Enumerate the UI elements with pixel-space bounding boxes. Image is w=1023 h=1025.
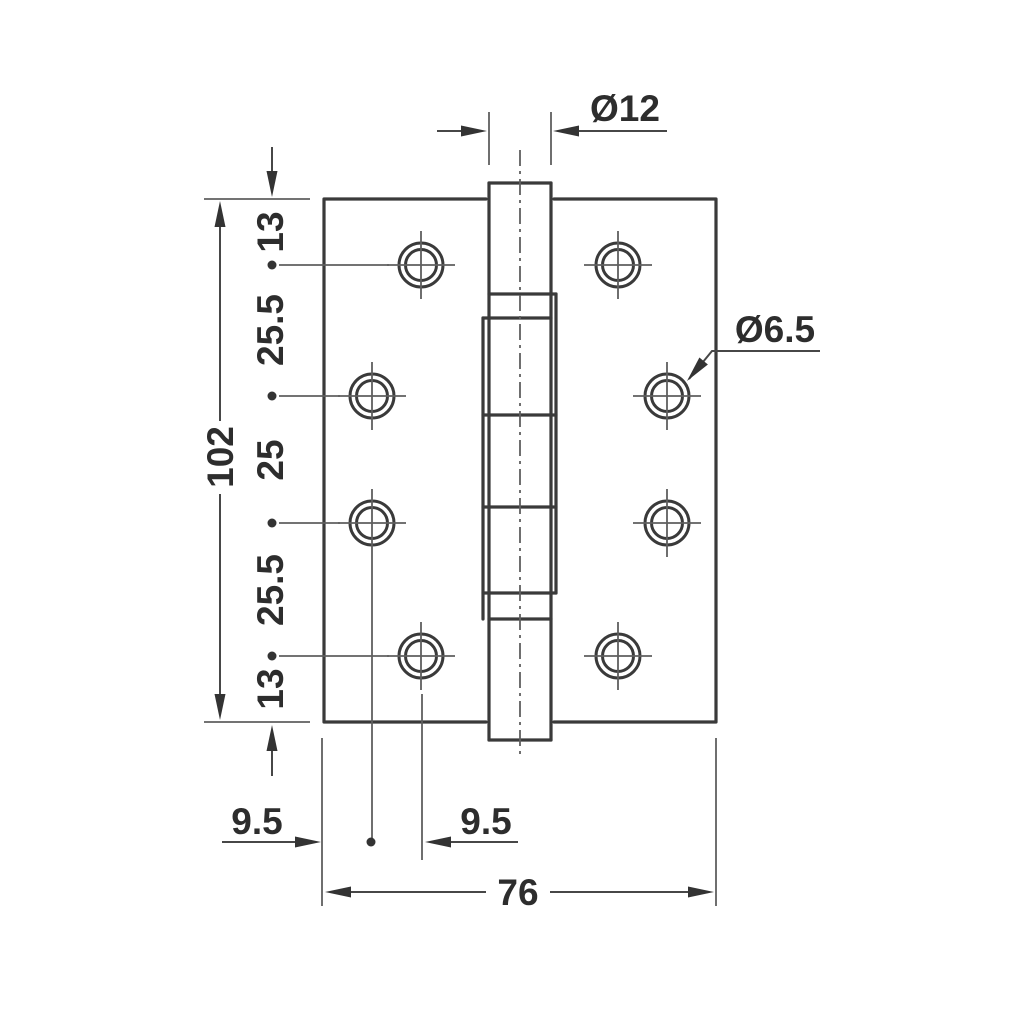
arrowhead-up [267, 725, 278, 751]
screw-hole [387, 231, 455, 299]
dim-text-hole-offset: 9.5 [460, 801, 511, 842]
chain-dot [268, 392, 277, 401]
arrowhead-right [295, 837, 321, 848]
dim-text-spacing-lower: 25.5 [250, 554, 291, 626]
screw-hole [584, 231, 652, 299]
screw-hole [633, 489, 701, 557]
dim-text-overall-width: 76 [497, 872, 538, 913]
arrowhead-down [267, 171, 278, 197]
dim-text-spacing-upper: 25.5 [250, 294, 291, 366]
dim-text-edge-offset-left: 9.5 [231, 801, 282, 842]
hinge-technical-drawing: 102 13 25.5 25 25.5 13 Ø12 Ø6.5 [0, 0, 1023, 1025]
arrowhead-down [215, 694, 226, 720]
arrowhead-right [461, 126, 487, 137]
dim-overall-width: 76 [325, 872, 714, 913]
chain-dot [367, 838, 376, 847]
drawing-canvas: 102 13 25.5 25 25.5 13 Ø12 Ø6.5 [0, 0, 1023, 1025]
arrowhead-left [325, 887, 351, 898]
arrowhead-left [553, 126, 579, 137]
screw-hole [633, 362, 701, 430]
chain-dot [268, 261, 277, 270]
screw-hole [338, 489, 406, 557]
dim-edge-offsets: 9.5 9.5 [222, 801, 518, 848]
dim-text-pin-diameter: Ø12 [590, 88, 660, 129]
chain-dot [268, 652, 277, 661]
arrowhead-right [688, 887, 714, 898]
arrowhead-up [215, 201, 226, 227]
dim-chain-vertical: 13 25.5 25 25.5 13 [250, 147, 291, 776]
dim-text-hole-diameter: Ø6.5 [735, 309, 815, 350]
screw-hole [338, 362, 406, 430]
screw-hole [387, 622, 455, 690]
screw-hole [584, 622, 652, 690]
dim-text-overall-height: 102 [200, 426, 241, 488]
chain-dot [268, 519, 277, 528]
hinge-knuckle [483, 150, 556, 757]
arrowhead-left [425, 837, 451, 848]
dim-text-spacing-bottom: 13 [250, 668, 291, 709]
dim-overall-height: 102 [200, 201, 241, 720]
dim-text-spacing-middle: 25 [250, 439, 291, 480]
left-leaf-outline [324, 199, 486, 722]
dim-text-spacing-top: 13 [250, 211, 291, 252]
dim-hole-diameter: Ø6.5 [687, 309, 820, 381]
dim-pin-diameter: Ø12 [437, 88, 667, 137]
